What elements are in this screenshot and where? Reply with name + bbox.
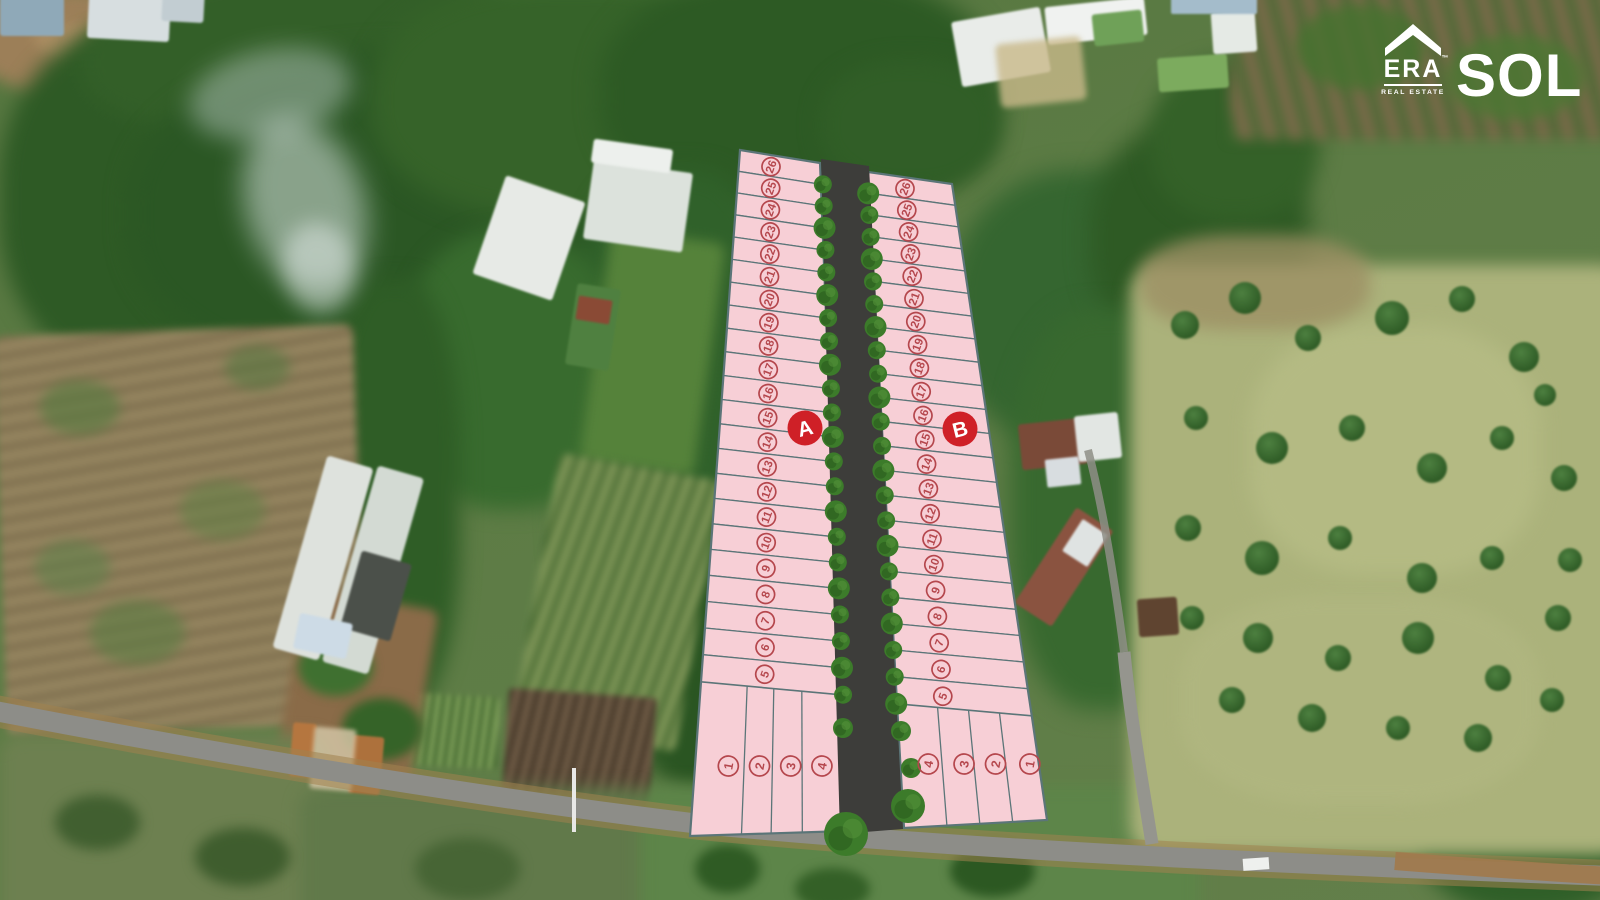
tree-canopy — [883, 489, 891, 497]
era-house-icon — [1385, 24, 1441, 56]
roadside-tree — [884, 641, 902, 659]
era-logo: ERA ™ REAL ESTATE — [1380, 24, 1446, 96]
driveway — [1088, 450, 1124, 652]
roadside-tree — [831, 657, 853, 679]
tree-canopy — [878, 390, 888, 400]
tree-canopy — [843, 819, 863, 839]
plot-A-bottom-section — [690, 682, 846, 836]
roadside-tree — [814, 175, 832, 193]
tree-canopy — [827, 312, 835, 320]
roadside-tree — [828, 528, 846, 546]
tree-canopy — [828, 357, 838, 367]
tree-canopy — [821, 178, 829, 186]
tree-canopy — [869, 231, 877, 239]
tree-canopy — [892, 644, 900, 652]
tree-canopy — [839, 608, 847, 616]
roadside-tree — [823, 404, 841, 422]
tree-canopy — [872, 275, 880, 283]
roadside-tree — [824, 812, 868, 856]
roadside-tree — [814, 217, 836, 239]
roadside-tree — [822, 380, 840, 398]
roadside-tree — [825, 452, 843, 470]
roadside-tree — [885, 693, 907, 715]
tree-canopy — [842, 688, 850, 696]
aerial-site-plan: 2626252524242323222221212020191918181717… — [0, 0, 1600, 900]
roadside-tree — [869, 365, 887, 383]
tree-canopy — [900, 724, 909, 733]
roadside-tree — [816, 241, 834, 259]
tree-canopy — [877, 367, 885, 375]
roadside-tree — [877, 535, 899, 557]
roadside-tree — [864, 272, 882, 290]
block-badge-A: A — [788, 411, 823, 446]
sol-wordmark: SOL — [1456, 46, 1582, 106]
roadside-tree — [857, 182, 879, 204]
roadside-tree — [832, 632, 850, 650]
tree-canopy — [870, 251, 880, 261]
tree-canopy — [832, 455, 840, 463]
tree-canopy — [874, 319, 884, 329]
tree-canopy — [875, 344, 883, 352]
tree-canopy — [835, 530, 843, 538]
roadside-tree — [873, 437, 891, 455]
tree-canopy — [890, 616, 900, 626]
block-badge-B: B — [943, 412, 978, 447]
vehicle — [1243, 857, 1270, 871]
roadside-tree — [825, 500, 847, 522]
tree-canopy — [888, 565, 896, 573]
tree-canopy — [840, 660, 850, 670]
roadside-tree — [865, 295, 883, 313]
era-wordmark: ERA ™ — [1384, 57, 1443, 86]
tree-canopy — [893, 670, 901, 678]
roadside-tree — [817, 263, 835, 281]
tree-canopy — [840, 635, 848, 643]
roadside-tree — [865, 316, 887, 338]
roadside-tree — [880, 562, 898, 580]
tree-canopy — [881, 440, 889, 448]
roadside-tree — [820, 332, 838, 350]
tree-canopy — [882, 463, 892, 473]
roadside-tree — [872, 413, 890, 431]
tree-canopy — [825, 266, 833, 274]
roadside-tree — [815, 197, 833, 215]
era-trademark: ™ — [1441, 55, 1450, 62]
tree-canopy — [879, 415, 887, 423]
tree-canopy — [905, 794, 920, 809]
roadside-tree — [816, 284, 838, 306]
roadside-tree — [833, 718, 853, 738]
roadside-tree — [828, 577, 850, 599]
roadside-tree — [860, 206, 878, 224]
tree-canopy — [886, 538, 896, 548]
tree-canopy — [823, 220, 833, 230]
roadside-tree — [826, 477, 844, 495]
roadside-tree — [886, 668, 904, 686]
plot-divider — [802, 691, 803, 832]
roadside-tree — [876, 486, 894, 504]
roadside-tree — [862, 228, 880, 246]
tree-canopy — [910, 761, 919, 770]
roadside-tree — [891, 789, 925, 823]
tree-canopy — [873, 298, 881, 306]
tree-canopy — [830, 382, 838, 390]
tree-canopy — [833, 480, 841, 488]
era-sol-logo: ERA ™ REAL ESTATE SOL — [1380, 24, 1582, 106]
tree-canopy — [828, 335, 836, 343]
tree-canopy — [834, 504, 844, 514]
roadside-tree — [891, 721, 911, 741]
roadside-tree — [881, 588, 899, 606]
tree-canopy — [822, 200, 830, 208]
subdivision-overlay: 2626252524242323222221212020191918181717… — [0, 0, 1600, 900]
tree-canopy — [842, 721, 851, 730]
tree-canopy — [868, 209, 876, 217]
roadside-tree — [822, 426, 844, 448]
tree-canopy — [824, 244, 832, 252]
utility-pole — [572, 768, 576, 832]
roadside-tree — [872, 459, 894, 481]
tree-canopy — [895, 696, 905, 706]
roadside-tree — [868, 387, 890, 409]
tree-canopy — [836, 556, 844, 564]
roadside-tree — [834, 686, 852, 704]
era-tagline: REAL ESTATE — [1381, 89, 1445, 96]
roadside-tree — [819, 354, 841, 376]
roadside-tree — [829, 553, 847, 571]
tree-canopy — [889, 591, 897, 599]
tree-canopy — [867, 186, 877, 196]
tree-canopy — [831, 429, 841, 439]
roadside-tree — [868, 341, 886, 359]
tree-canopy — [831, 406, 839, 414]
tree-canopy — [826, 287, 836, 297]
tree-canopy — [837, 581, 847, 591]
roadside-tree — [819, 309, 837, 327]
side-road — [1124, 652, 1152, 844]
roadside-tree — [831, 606, 849, 624]
roadside-tree — [877, 511, 895, 529]
roadside-tree — [861, 248, 883, 270]
tree-canopy — [885, 514, 893, 522]
roadside-tree — [881, 613, 903, 635]
